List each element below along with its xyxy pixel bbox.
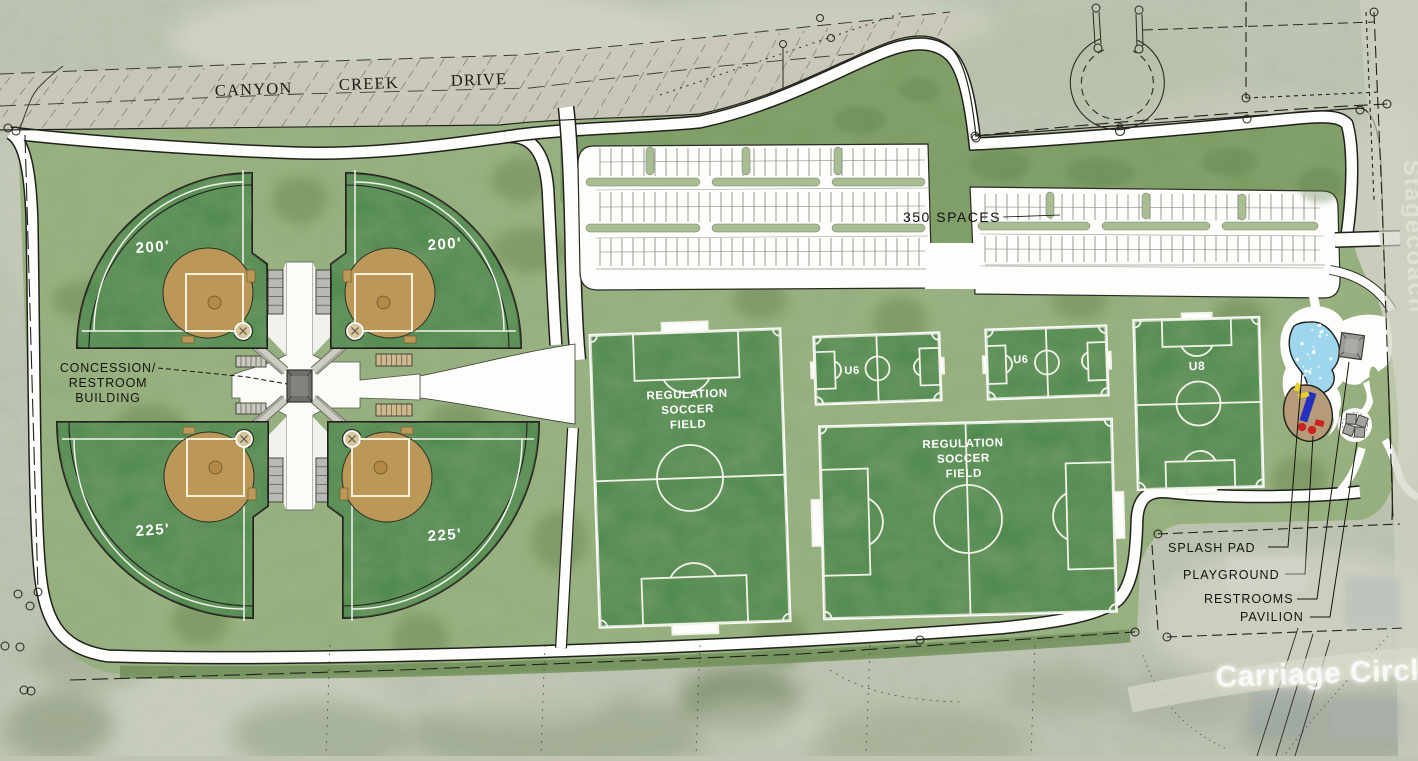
svg-text:350 SPACES: 350 SPACES — [903, 209, 1001, 225]
svg-text:RESTROOMS: RESTROOMS — [1204, 592, 1294, 606]
svg-text:U6: U6 — [1013, 354, 1029, 367]
svg-text:CREEK: CREEK — [338, 73, 399, 94]
svg-text:PAVILION: PAVILION — [1240, 610, 1304, 624]
svg-text:SOCCER: SOCCER — [937, 452, 990, 465]
svg-text:U6: U6 — [844, 365, 860, 378]
svg-text:200': 200' — [135, 238, 171, 257]
svg-text:225': 225' — [427, 526, 463, 545]
svg-text:FIELD: FIELD — [946, 468, 983, 481]
svg-text:CONCESSION/: CONCESSION/ — [60, 361, 156, 375]
svg-text:BUILDING: BUILDING — [75, 391, 140, 405]
svg-text:225': 225' — [135, 521, 171, 540]
svg-text:U8: U8 — [1189, 359, 1206, 373]
svg-text:PLAYGROUND: PLAYGROUND — [1183, 568, 1280, 582]
svg-text:RESTROOM: RESTROOM — [69, 376, 148, 390]
svg-text:200': 200' — [427, 235, 463, 254]
svg-text:CANYON: CANYON — [214, 78, 292, 100]
svg-text:REGULATION: REGULATION — [922, 437, 1003, 451]
svg-text:FIELD: FIELD — [670, 418, 707, 431]
svg-text:SOCCER: SOCCER — [661, 403, 714, 417]
svg-text:SPLASH PAD: SPLASH PAD — [1168, 541, 1256, 555]
svg-text:DRIVE: DRIVE — [450, 69, 507, 90]
svg-text:Carriage Circle: Carriage Circle — [1215, 653, 1418, 694]
